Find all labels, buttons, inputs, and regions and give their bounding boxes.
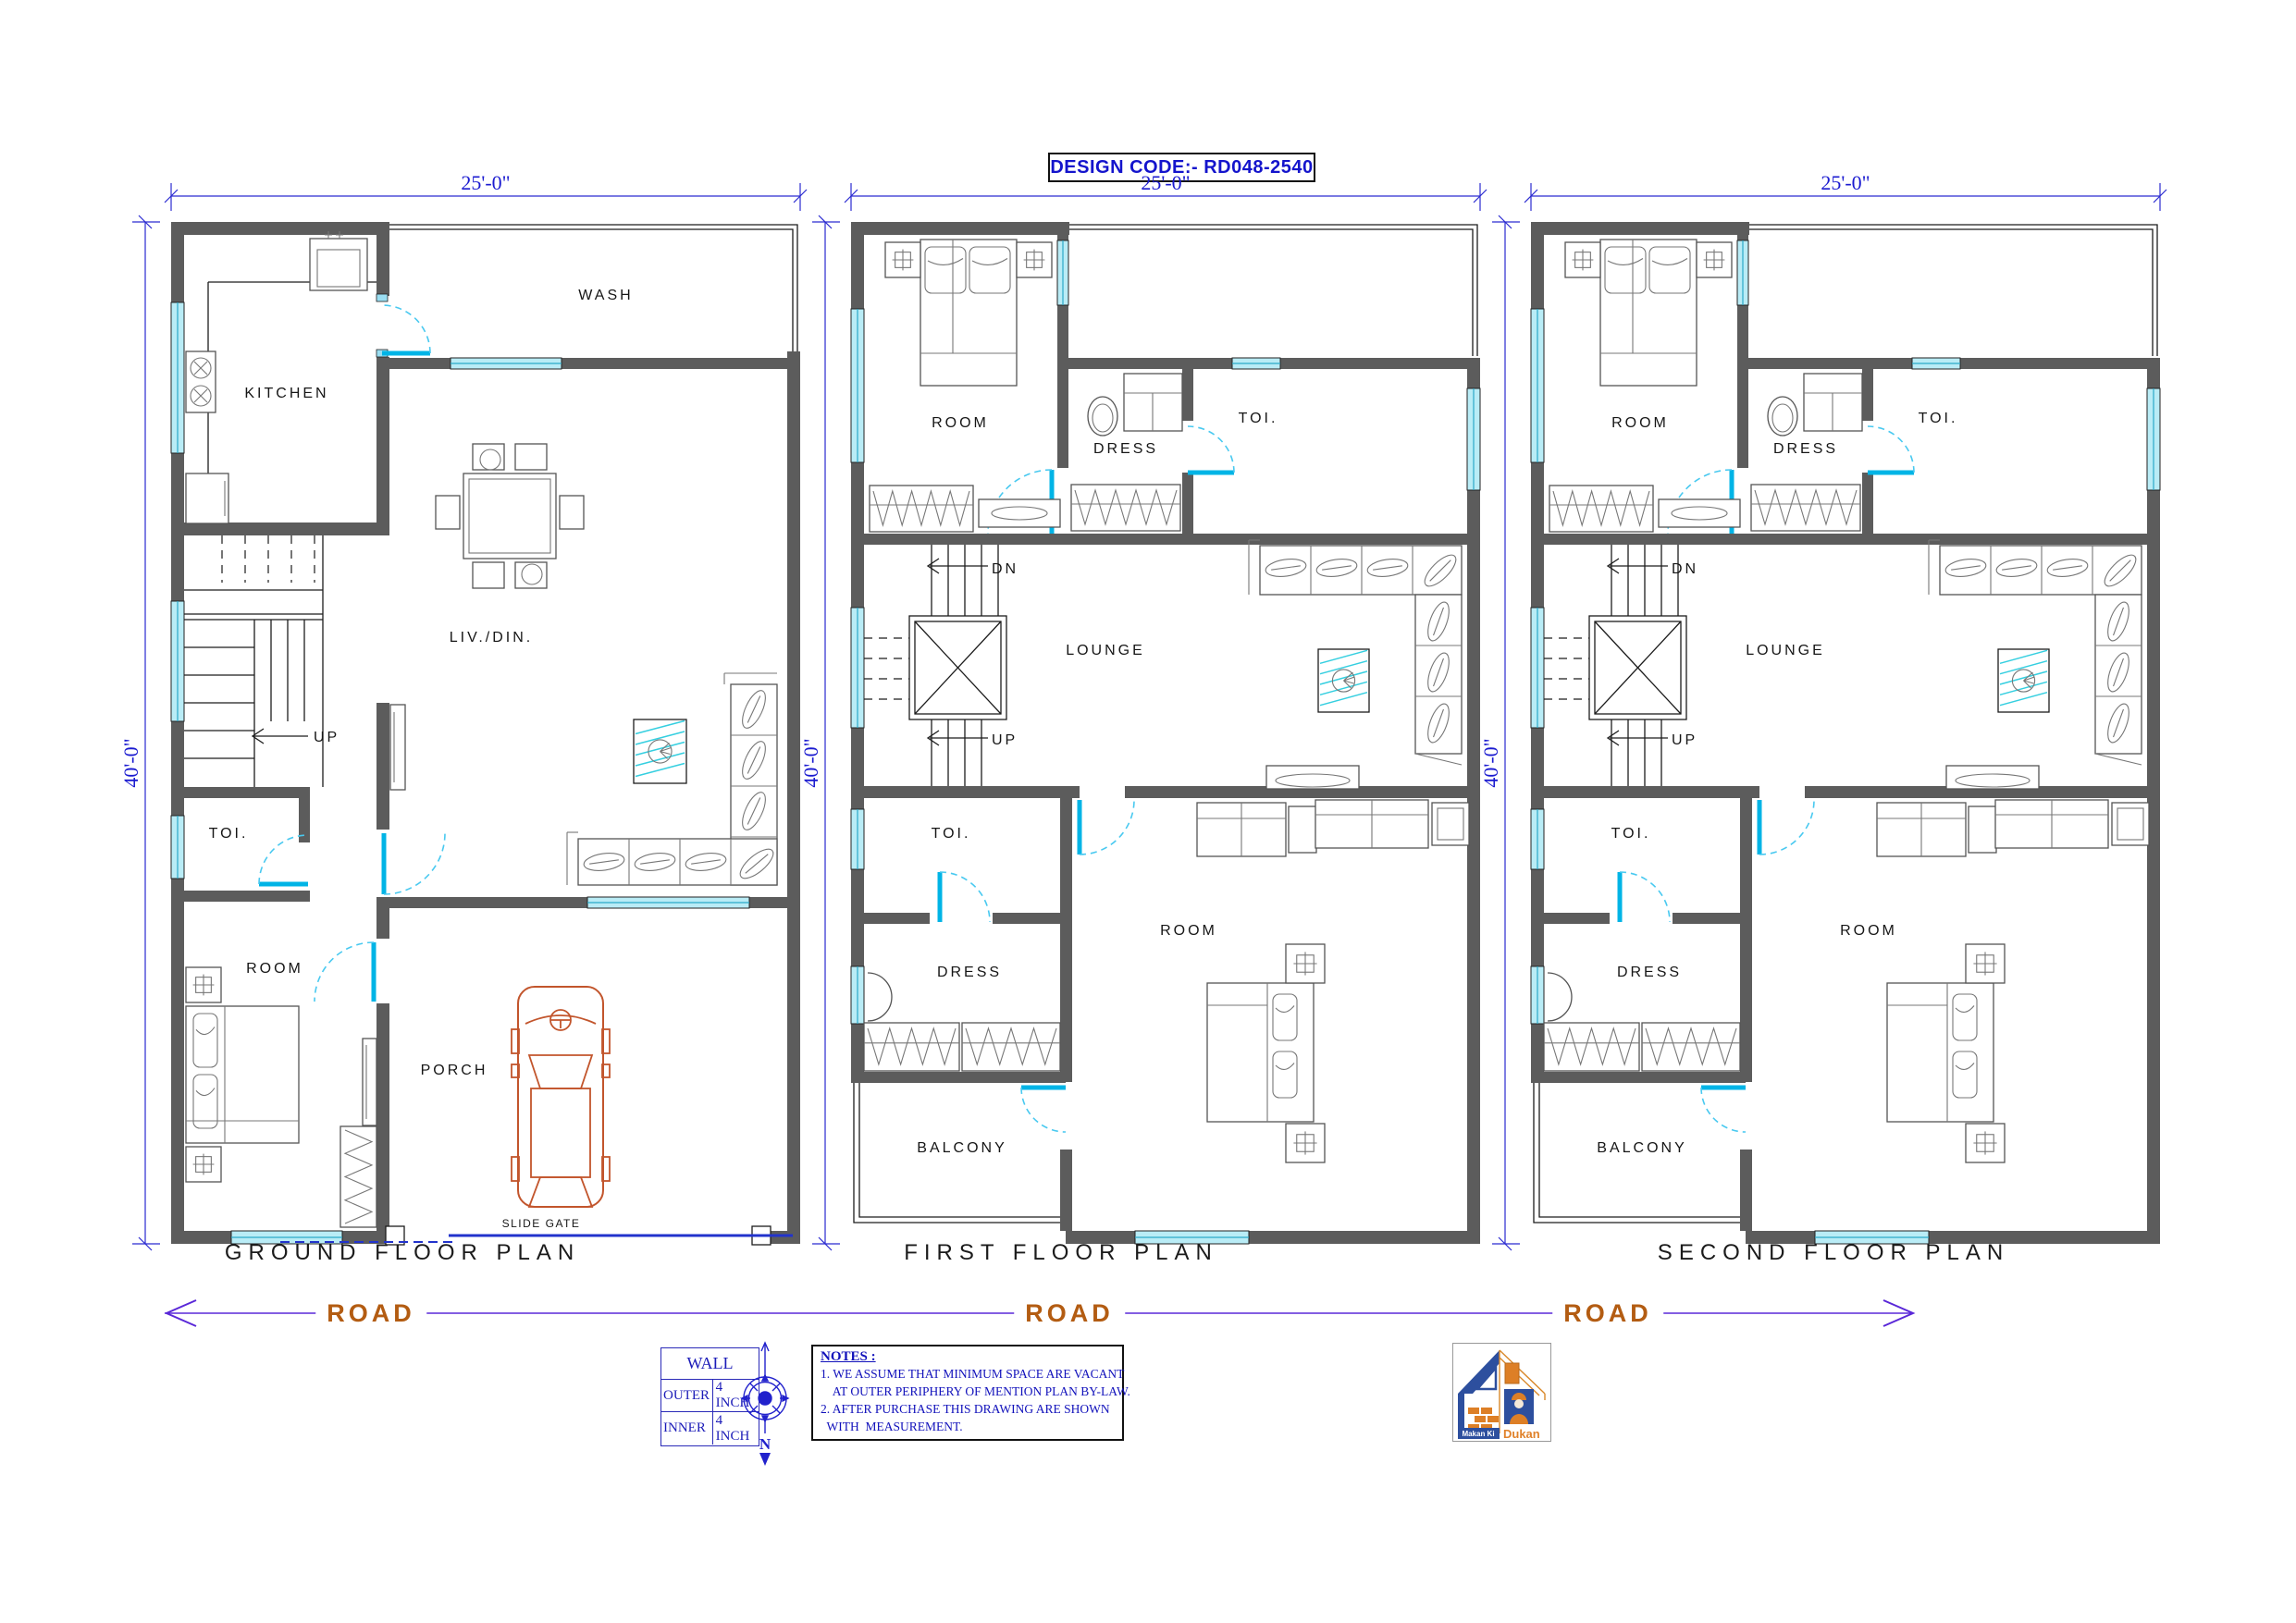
- plant-hatch: [1320, 650, 1367, 663]
- top-dimension-label: 25'-0": [1821, 171, 1870, 194]
- logo-worker-head: [1514, 1399, 1524, 1408]
- plant-hatch: [2000, 661, 2047, 674]
- second-floor-title: SECOND FLOOR PLAN: [1658, 1240, 2009, 1266]
- second-floor: ROOMDRESSTOI.DNUPLOUNGETOI.DRESSROOMBALC…: [1531, 222, 2160, 1244]
- room-label: LIV./DIN.: [450, 630, 533, 646]
- wall-segment: [1249, 1231, 1480, 1244]
- room-label: TOI.: [209, 826, 249, 842]
- terrace-outline: [1068, 225, 1477, 356]
- staircase: [1544, 545, 1686, 786]
- room-label: PORCH: [421, 1063, 488, 1078]
- plant-hatch: [2000, 650, 2047, 663]
- terrace-outline: [1748, 225, 2157, 356]
- staircase: [864, 545, 1006, 786]
- plant-hatch: [2000, 682, 2047, 695]
- wall-segment: [1531, 913, 1610, 924]
- ground-floor-plan-drawing: KITCHENWASHLIV./DIN.UPTOI.ROOMPORCHSLIDE…: [97, 153, 814, 1267]
- wall-segment: [171, 222, 389, 235]
- room-label: WASH: [578, 288, 633, 303]
- door-swing-arc: [1759, 800, 1814, 855]
- door-swing-arc: [1701, 1088, 1746, 1132]
- door-swing-arc: [1620, 872, 1670, 922]
- wall-segment: [1673, 913, 1740, 924]
- room-label: LOUNGE: [1066, 643, 1145, 658]
- door-swing-arc: [1868, 426, 1914, 473]
- wall-segment: [851, 222, 1069, 235]
- ground-floor-title: GROUND FLOOR PLAN: [225, 1240, 580, 1266]
- north-compass-icon: N: [737, 1341, 793, 1466]
- door-swing-arc: [940, 872, 990, 922]
- room-label: LOUNGE: [1746, 643, 1825, 658]
- wall-outer-label: OUTER: [661, 1380, 713, 1411]
- dimension-lines: 25'-0"40'-0": [1479, 171, 2166, 1250]
- room-label: DRESS: [1773, 441, 1838, 457]
- wall-segment: [1748, 358, 1912, 369]
- left-dimension-label: 40'-0": [1479, 738, 1502, 787]
- chair: [473, 562, 504, 588]
- room-label: DN: [992, 561, 1018, 577]
- wall-segment: [1182, 473, 1193, 534]
- wall-segment: [184, 523, 376, 535]
- wall-segment: [171, 1231, 231, 1244]
- room-label: DRESS: [1617, 965, 1682, 980]
- chair: [473, 444, 504, 470]
- door-swing-arc: [1080, 800, 1134, 855]
- tv-cabinet: [390, 705, 405, 790]
- shape: [1415, 754, 1462, 765]
- side-table: [1969, 806, 1996, 853]
- mirror-panel: [363, 1039, 376, 1125]
- room-label: TOI.: [1611, 826, 1651, 842]
- wall-segment: [1531, 222, 1749, 235]
- plant-hatch: [2000, 693, 2047, 706]
- plant-hatch: [1320, 693, 1367, 706]
- chair: [560, 496, 584, 529]
- bed: [1207, 983, 1314, 1122]
- ground-floor: KITCHENWASHLIV./DIN.UPTOI.ROOMPORCHSLIDE…: [171, 222, 800, 1245]
- room-label: ROOM: [1611, 415, 1669, 431]
- plant-hatch: [1320, 661, 1367, 674]
- plant-hatch: [636, 743, 685, 756]
- logo-wall: [1458, 1394, 1464, 1433]
- wall-segment: [562, 358, 787, 369]
- plant-hatch: [2000, 671, 2047, 684]
- notes-line: WITH MEASUREMENT.: [821, 1418, 1115, 1435]
- plant-hatch: [636, 764, 685, 777]
- sofa-arm: [1940, 546, 2142, 595]
- room-label: TOI.: [1239, 411, 1278, 426]
- l-sofa: [1929, 540, 2142, 765]
- shelf: [1659, 499, 1740, 527]
- notes-box: NOTES : 1. WE ASSUME THAT MINIMUM SPACE …: [811, 1345, 1124, 1441]
- wall-segment: [376, 703, 389, 830]
- car-icon: [512, 987, 610, 1207]
- door-swing-arc: [1021, 1088, 1066, 1132]
- logo-name-1: Makan Ki: [1462, 1430, 1494, 1438]
- staircase: [184, 535, 323, 787]
- l-sofa: [1249, 540, 1462, 765]
- left-dimension-label: 40'-0": [119, 738, 142, 787]
- door-swing-arc: [382, 305, 430, 353]
- terrace-outline: [1748, 229, 2153, 356]
- room-label: DN: [1672, 561, 1698, 577]
- door-swing-arc: [315, 942, 374, 1002]
- sofa-arm: [1415, 595, 1462, 754]
- room-label: DRESS: [1093, 441, 1158, 457]
- shelf: [979, 499, 1060, 527]
- sofa-arm: [2095, 595, 2142, 754]
- wall-segment: [389, 897, 587, 908]
- plant-hatch: [1320, 682, 1367, 695]
- plant-hatch: [1320, 671, 1367, 684]
- wall-segment: [851, 913, 930, 924]
- top-dimension-label: 25'-0": [1141, 171, 1190, 194]
- room-label: UP: [1672, 732, 1697, 748]
- notes-title: NOTES :: [821, 1349, 1115, 1365]
- wall-segment: [389, 358, 451, 369]
- logo-cement-bag: [1505, 1363, 1519, 1383]
- wall-segment: [1862, 369, 1873, 421]
- dining-table: [463, 473, 556, 559]
- road-label-middle: ROAD: [1014, 1297, 1125, 1329]
- wall-segment: [1068, 358, 1232, 369]
- sofa-arm: [1260, 546, 1462, 595]
- door-swing-arc: [384, 833, 445, 894]
- first-floor: ROOMDRESSTOI.DNUPLOUNGETOI.DRESSROOMBALC…: [851, 222, 1480, 1244]
- door-swing-arc: [1188, 426, 1234, 473]
- wall-segment: [851, 534, 1480, 545]
- chair: [515, 444, 547, 470]
- road-label-right: ROAD: [1552, 1297, 1663, 1329]
- notes-line: 2. AFTER PURCHASE THIS DRAWING ARE SHOWN: [821, 1400, 1115, 1418]
- first-floor-title: FIRST FLOOR PLAN: [904, 1240, 1218, 1266]
- room-label: ROOM: [1840, 923, 1897, 939]
- room-label: DRESS: [937, 965, 1002, 980]
- wall-segment: [1531, 534, 2160, 545]
- wall-segment: [184, 787, 310, 798]
- wall-segment: [376, 357, 389, 535]
- chair: [436, 496, 460, 529]
- notes-line: 1. WE ASSUME THAT MINIMUM SPACE ARE VACA…: [821, 1365, 1115, 1383]
- first-floor-plan-drawing: ROOMDRESSTOI.DNUPLOUNGETOI.DRESSROOMBALC…: [777, 153, 1494, 1267]
- kitchen-sink: [310, 239, 367, 290]
- wall-segment: [184, 891, 310, 902]
- terrace-outline: [1068, 229, 1473, 356]
- room-label: SLIDE GATE: [502, 1217, 581, 1230]
- compass-rose: [742, 1343, 788, 1433]
- wall-segment: [993, 913, 1060, 924]
- wall-segment: [1740, 798, 1752, 1082]
- wall-segment: [851, 1072, 1066, 1083]
- logo-name-2: Dukan: [1503, 1427, 1540, 1441]
- wall-segment: [376, 1003, 389, 1231]
- room-label: KITCHEN: [244, 386, 328, 401]
- dimension-lines: 25'-0"40'-0": [799, 171, 1487, 1250]
- room-label: BALCONY: [917, 1140, 1006, 1156]
- wall-segment: [1531, 1072, 1746, 1083]
- room-label: UP: [992, 732, 1018, 748]
- fridge: [186, 473, 228, 523]
- wall-segment: [1060, 1150, 1072, 1231]
- plant-hatch: [636, 732, 685, 744]
- wash-basin: [868, 973, 892, 1021]
- notes-line: AT OUTER PERIPHERY OF MENTION PLAN BY-LA…: [821, 1383, 1115, 1400]
- wall-segment: [1960, 358, 2147, 369]
- room-label: BALCONY: [1597, 1140, 1686, 1156]
- plant-hatch: [636, 721, 685, 734]
- top-dimension-label: 25'-0": [461, 171, 510, 194]
- road-label-left: ROAD: [315, 1297, 426, 1329]
- left-dimension-label: 40'-0": [799, 738, 822, 787]
- wall-segment: [1182, 369, 1193, 421]
- side-table: [1289, 806, 1316, 853]
- wall-segment: [376, 897, 389, 939]
- stove: [186, 351, 216, 412]
- wall-segment: [1280, 358, 1467, 369]
- door-jamb: [376, 294, 388, 301]
- bed: [1887, 983, 1994, 1122]
- wall-segment: [851, 786, 1080, 798]
- second-floor-plan-drawing: ROOMDRESSTOI.DNUPLOUNGETOI.DRESSROOMBALC…: [1457, 153, 2174, 1267]
- compass-north-label: N: [759, 1435, 772, 1453]
- room-label: TOI.: [932, 826, 971, 842]
- shape: [2095, 754, 2142, 765]
- wall-segment: [376, 235, 389, 296]
- wall-segment: [1862, 473, 1873, 534]
- floor-plan-sheet: { "design_code": "DESIGN CODE:- RD048-25…: [0, 0, 2296, 1623]
- compass-south-arrow-icon: [759, 1453, 771, 1466]
- room-label: UP: [314, 730, 339, 745]
- wall-inner-label: INNER: [661, 1412, 713, 1445]
- wall-segment: [1531, 786, 1759, 798]
- room-label: ROOM: [932, 415, 989, 431]
- kitchen-counter: [208, 282, 376, 523]
- plant-hatch: [636, 753, 685, 766]
- l-sofa: [567, 673, 778, 885]
- wall-segment: [1740, 1150, 1752, 1231]
- room-label: TOI.: [1919, 411, 1958, 426]
- company-logo: Makan Ki Dukan: [1452, 1343, 1551, 1442]
- room-label: ROOM: [246, 961, 303, 977]
- wall-segment: [1060, 798, 1072, 1082]
- room-label: ROOM: [1160, 923, 1217, 939]
- wash-basin: [1548, 973, 1572, 1021]
